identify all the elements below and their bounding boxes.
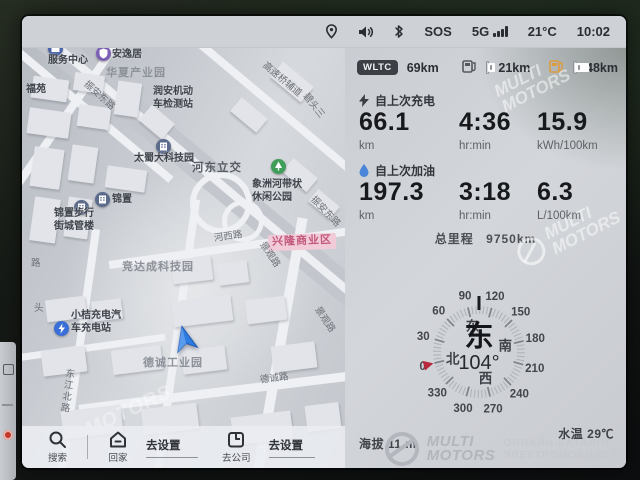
lightning-icon <box>359 94 369 107</box>
svg-text:120: 120 <box>485 291 504 303</box>
odometer-label: 总里程 <box>435 232 474 246</box>
home-icon <box>108 430 128 449</box>
home-setup-link[interactable]: 去设置 <box>146 437 198 458</box>
svg-text:240: 240 <box>510 389 529 401</box>
map-building <box>77 104 112 130</box>
svg-text:西: 西 <box>479 371 493 386</box>
go-company-label: 去公司 <box>222 450 251 464</box>
search-button[interactable]: 搜索 <box>48 430 67 464</box>
svg-text:210: 210 <box>525 363 544 375</box>
map-label: 锦置 <box>112 194 132 207</box>
map-building <box>29 146 64 190</box>
fuel-gauge <box>573 61 577 74</box>
search-label: 搜索 <box>48 450 67 464</box>
building-poi-icon[interactable] <box>156 139 171 154</box>
svg-text:270: 270 <box>483 403 502 415</box>
svg-text:180: 180 <box>526 333 545 345</box>
svg-text:东: 东 <box>466 318 480 334</box>
map-building <box>270 61 313 102</box>
map-label: 安逸居 <box>112 49 142 62</box>
network-status: 5G <box>472 24 508 39</box>
refuel-consumption: 6.3 L/100km <box>537 180 581 222</box>
map-building <box>111 345 164 375</box>
map-building <box>31 76 70 103</box>
svg-text:北: 北 <box>446 352 460 367</box>
status-bar: SOS 5G 21°C 10:02 <box>22 16 626 48</box>
droplet-icon <box>359 164 369 177</box>
charge-distance: 66.1 km <box>359 110 410 152</box>
shield-poi-icon[interactable] <box>96 48 111 61</box>
compass-dial: 0306090120150180210240270300330北东南西 <box>401 274 557 430</box>
battery-gauge <box>486 61 490 74</box>
signal-icon <box>493 26 508 37</box>
map-building <box>308 189 340 219</box>
company-icon <box>226 430 246 449</box>
svg-text:30: 30 <box>417 331 430 343</box>
map-building <box>105 165 148 192</box>
charge-station-icon <box>462 59 477 76</box>
bluetooth-icon[interactable] <box>394 24 404 39</box>
map-building <box>41 345 88 376</box>
compass: 0306090120150180210240270300330北东南西 东 10… <box>401 274 557 430</box>
record-icon[interactable] <box>3 430 13 440</box>
go-company-button[interactable]: 去公司 <box>222 430 251 464</box>
wltc-range-value: 69km <box>407 61 439 75</box>
network-type-label: 5G <box>472 24 489 39</box>
fuel-pump-icon <box>549 59 564 76</box>
outside-temperature: 21°C <box>528 24 557 39</box>
go-home-label: 回家 <box>109 450 128 464</box>
since-refuel-title: 自上次加油 <box>359 162 435 179</box>
search-icon <box>48 430 67 449</box>
refuel-distance: 197.3 km <box>359 180 424 222</box>
map-building <box>91 298 123 322</box>
svg-text:60: 60 <box>432 305 445 317</box>
odometer-value: 9750km <box>486 232 536 246</box>
side-dock-strip <box>0 342 16 480</box>
wltc-badge: WLTC <box>357 60 398 75</box>
map-building <box>114 80 142 117</box>
dock-divider <box>2 404 13 406</box>
svg-text:南: 南 <box>498 337 512 353</box>
svg-text:300: 300 <box>453 403 472 415</box>
sos-button[interactable]: SOS <box>424 24 451 39</box>
navigation-map[interactable]: 服务中心安逸居华夏产业园福苑振安东路润安机动 车检测站高速桥辅道碧头三太蜀大科技… <box>22 48 345 468</box>
building-poi-icon[interactable] <box>95 192 110 207</box>
clock: 10:02 <box>577 24 610 39</box>
company-setup-link[interactable]: 去设置 <box>269 437 315 458</box>
svg-text:330: 330 <box>428 387 447 399</box>
map-building <box>171 256 214 285</box>
map-building <box>230 97 268 133</box>
location-icon[interactable] <box>325 24 338 39</box>
map-label: 润安机动 车检测站 <box>153 86 193 111</box>
svg-text:90: 90 <box>459 291 472 303</box>
map-building <box>68 144 99 183</box>
car-infotainment-screen: SOS 5G 21°C 10:02 服务中心安逸居华夏产业园福苑振安东路润安机动… <box>22 16 626 468</box>
svg-text:150: 150 <box>511 307 530 319</box>
map-building <box>29 196 61 243</box>
map-building <box>282 158 318 192</box>
map-label: 头 <box>34 303 44 315</box>
fuel-range-value: 48km <box>586 61 618 75</box>
charge-consumption: 15.9 kWh/100km <box>537 110 598 152</box>
map-building <box>217 260 249 285</box>
park-poi-icon[interactable] <box>271 159 286 174</box>
map-building <box>245 296 288 325</box>
refuel-duration: 3:18 hr:min <box>459 180 511 222</box>
building-poi-icon[interactable] <box>74 200 89 215</box>
trip-info-panel: WLTC 69km 21km 48km 自上次充电 66.1 km 4:36 h… <box>345 48 626 468</box>
map-label: 路 <box>31 258 41 270</box>
altitude: 海拔 11 m <box>359 435 417 452</box>
interchange-loop-small <box>222 200 264 242</box>
since-charge-title: 自上次充电 <box>359 92 435 109</box>
charge-poi-icon[interactable] <box>54 321 69 336</box>
go-home-button[interactable]: 回家 <box>108 430 128 464</box>
dock-app-icon[interactable] <box>3 364 14 375</box>
odometer: 总里程 9750km <box>345 230 626 247</box>
charge-duration: 4:36 hr:min <box>459 110 511 152</box>
map-building <box>271 341 318 372</box>
map-label: 景观路 <box>311 305 337 335</box>
electric-range-value: 21km <box>498 61 530 75</box>
map-bottom-bar: 搜索 回家 去设置 去公司 去设置 <box>22 426 345 468</box>
range-row: WLTC 69km 21km 48km <box>357 59 618 76</box>
volume-icon[interactable] <box>358 25 374 39</box>
map-building <box>26 107 71 139</box>
bank-poi-icon[interactable] <box>48 48 63 56</box>
bar-divider <box>87 435 88 459</box>
water-temperature: 水温 29℃ <box>558 425 614 442</box>
